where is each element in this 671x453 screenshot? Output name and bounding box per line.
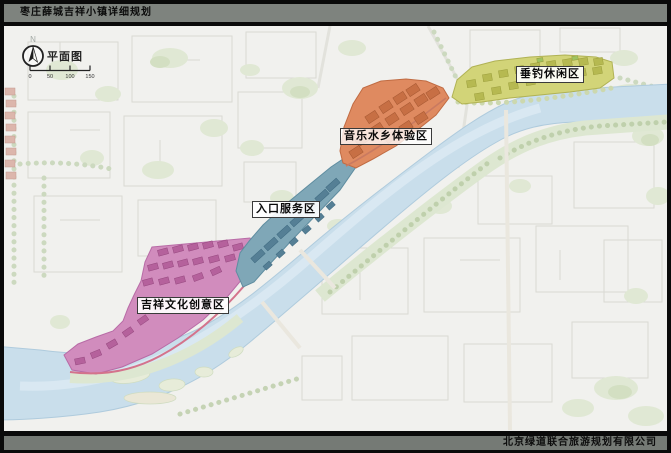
scale-tick-150: 150 bbox=[85, 74, 94, 80]
sheet-title: 枣庄薛城吉祥小镇详细规划 bbox=[20, 7, 152, 18]
zone-label-culture: 吉祥文化创意区 bbox=[137, 297, 229, 314]
sheet-title-bar: 枣庄薛城吉祥小镇详细规划 bbox=[4, 4, 667, 22]
site-plan-map: N 平面图 0 50 100 150 bbox=[4, 26, 667, 431]
sheet-footer-bar: 北京绿道联合旅游规划有限公司 bbox=[4, 436, 667, 450]
scale-tick-0: 0 bbox=[28, 74, 31, 80]
scale-tick-100: 100 bbox=[65, 74, 74, 80]
zone-label-entrance: 入口服务区 bbox=[252, 201, 320, 218]
zone-label-music: 音乐水乡体验区 bbox=[340, 128, 432, 145]
scale-tick-50: 50 bbox=[47, 74, 53, 80]
zone-label-fishing: 垂钓休闲区 bbox=[516, 66, 584, 83]
north-label: N bbox=[30, 35, 36, 44]
company-name: 北京绿道联合旅游规划有限公司 bbox=[503, 437, 657, 448]
plan-view-label: 平面图 bbox=[47, 50, 83, 63]
plan-sheet: 枣庄薛城吉祥小镇详细规划 bbox=[0, 0, 671, 453]
